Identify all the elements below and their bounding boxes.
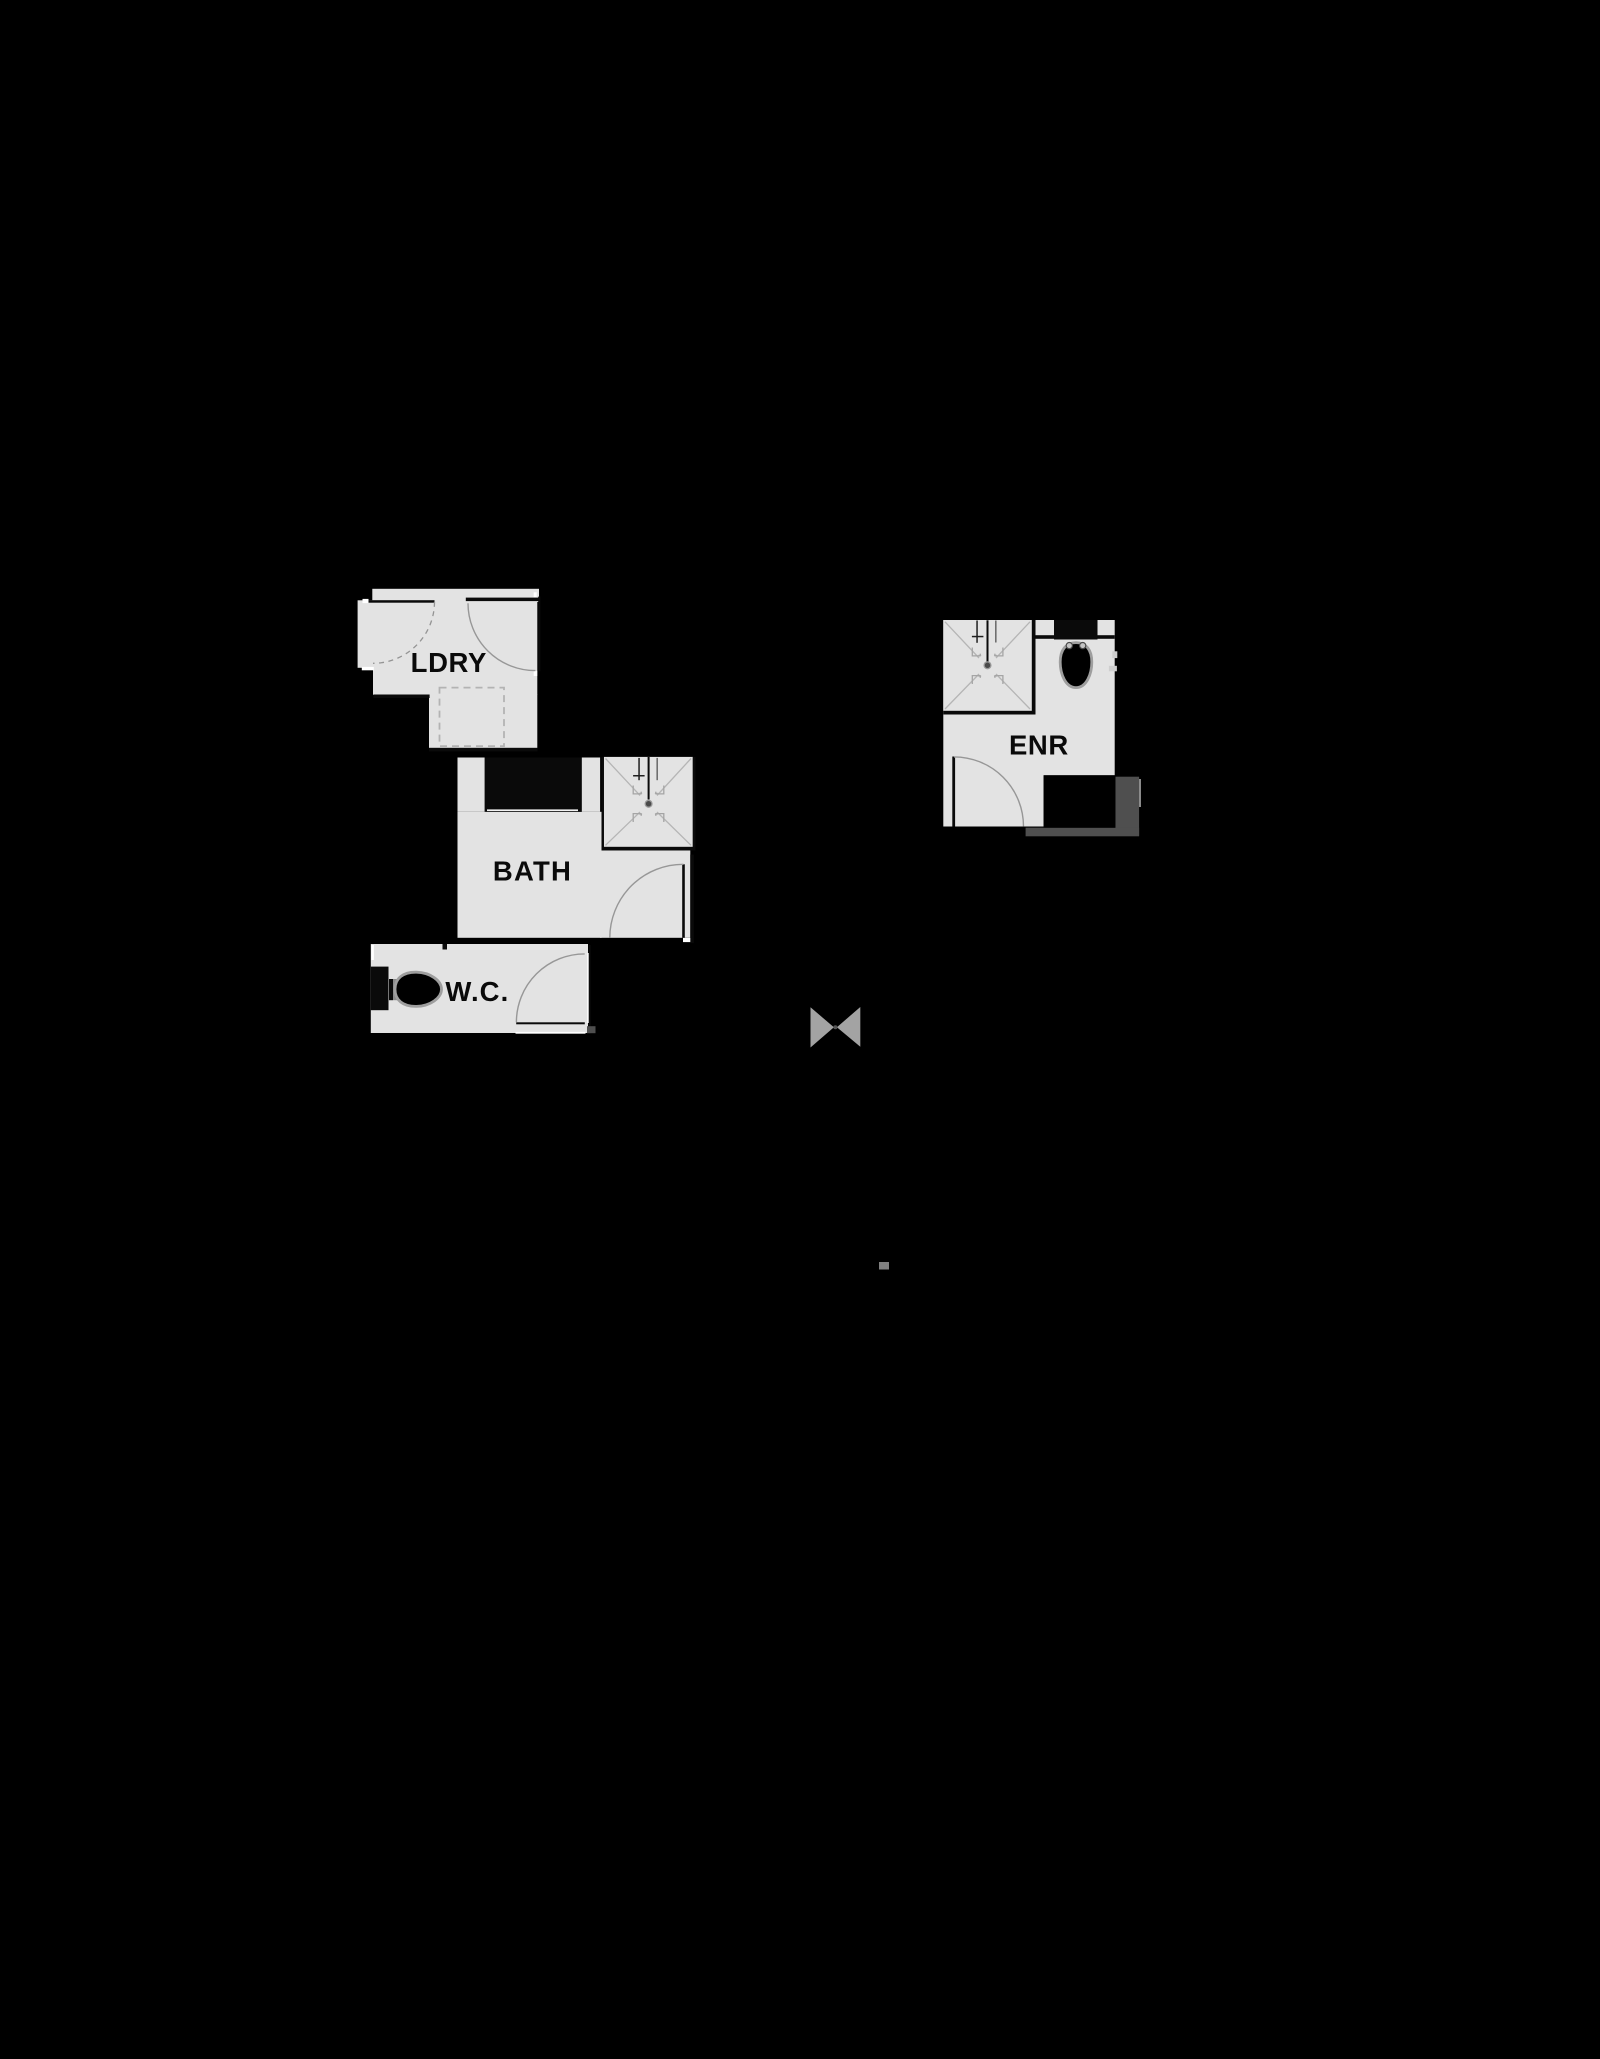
svg-text:BATH: BATH — [493, 855, 572, 886]
svg-text:W.C.: W.C. — [445, 976, 509, 1007]
svg-text:LDRY: LDRY — [411, 647, 487, 678]
svg-text:ENR: ENR — [1009, 729, 1069, 760]
